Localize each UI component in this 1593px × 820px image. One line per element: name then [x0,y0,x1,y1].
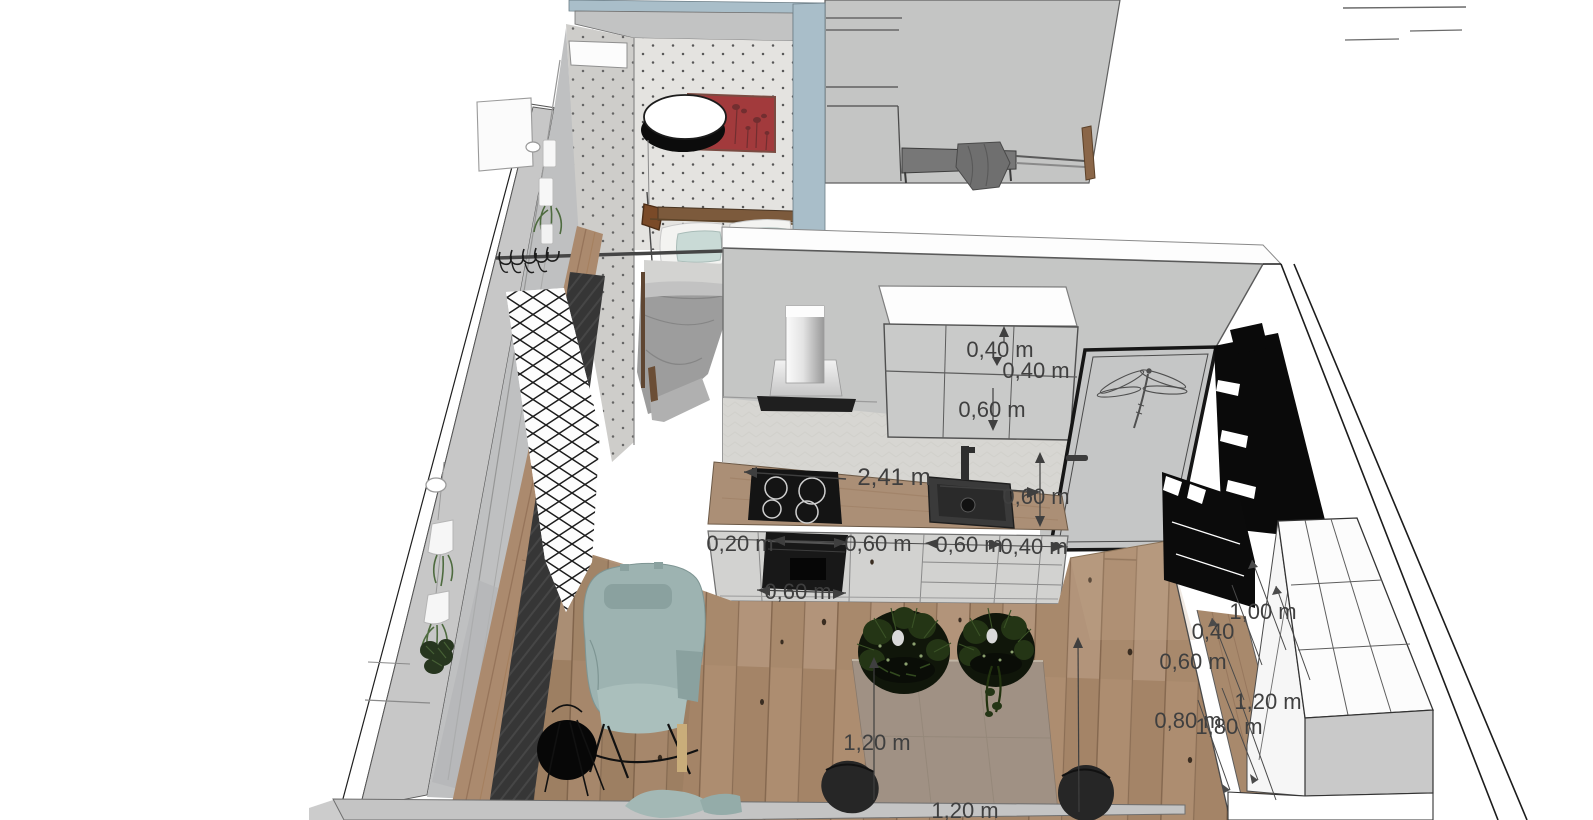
svg-text:1,20 m: 1,20 m [1234,689,1301,714]
svg-text:0,40 m: 0,40 m [1000,534,1067,559]
svg-text:0,60 m: 0,60 m [935,532,1002,557]
svg-text:0,40 m: 0,40 m [1002,358,1069,383]
svg-text:0,60 m: 0,60 m [1002,484,1069,509]
svg-text:0,60 m: 0,60 m [844,531,911,556]
svg-text:1,80 m: 1,80 m [1195,714,1262,739]
svg-text:0,60 m: 0,60 m [958,397,1025,422]
svg-text:0,20 m: 0,20 m [706,531,773,556]
svg-text:0,60 m: 0,60 m [764,579,831,604]
svg-text:0,60 m: 0,60 m [1159,649,1226,674]
svg-text:1,20 m: 1,20 m [931,798,998,820]
svg-text:2,41 m: 2,41 m [857,464,930,491]
svg-text:1,00 m: 1,00 m [1229,599,1296,624]
svg-text:1,20 m: 1,20 m [843,730,910,755]
svg-text:0,40: 0,40 [1192,619,1235,644]
